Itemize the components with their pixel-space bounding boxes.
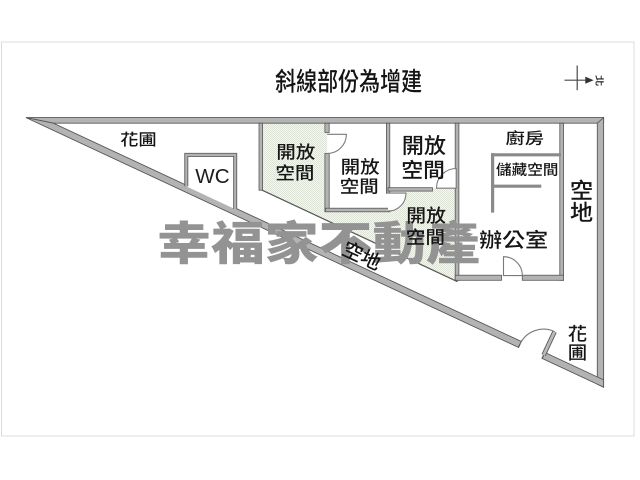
svg-text:WC: WC <box>195 165 229 188</box>
